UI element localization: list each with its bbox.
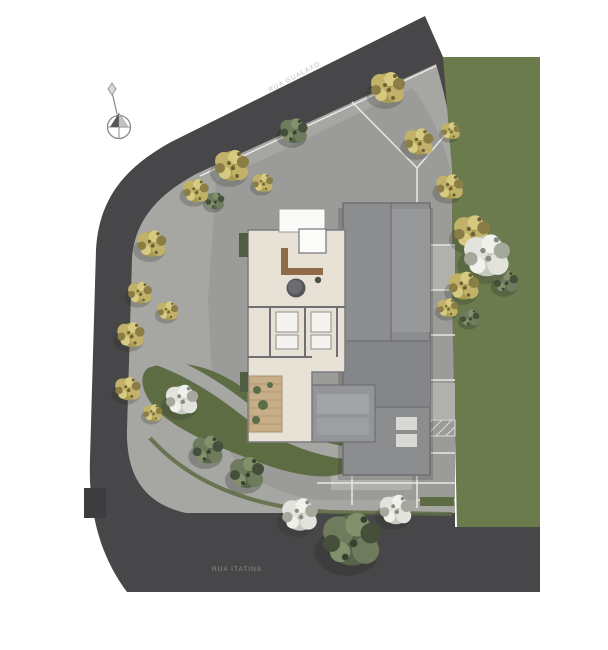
facade-hedge: [240, 372, 248, 392]
core-fixture: [396, 417, 417, 430]
annex-room: [317, 394, 369, 414]
building: [239, 203, 433, 480]
potted-plant: [315, 277, 321, 283]
site-plan-drawing: ♿: [0, 0, 608, 650]
core-fixture: [396, 434, 417, 447]
site-plan-page: ♿: [0, 0, 608, 650]
white-room: [299, 229, 326, 253]
kitchen-counter: [281, 248, 288, 270]
curb-utility-patch: [84, 488, 106, 518]
street-label-bottom: RUA ITATINS: [212, 566, 262, 573]
compass-north-icon: [108, 83, 131, 139]
round-table-top: [288, 280, 302, 294]
facade-hedge: [239, 233, 248, 257]
core-upper-room: [391, 209, 430, 332]
annex-room: [317, 418, 369, 435]
hedge-strip: [420, 497, 454, 506]
kitchen-counter: [281, 268, 323, 275]
